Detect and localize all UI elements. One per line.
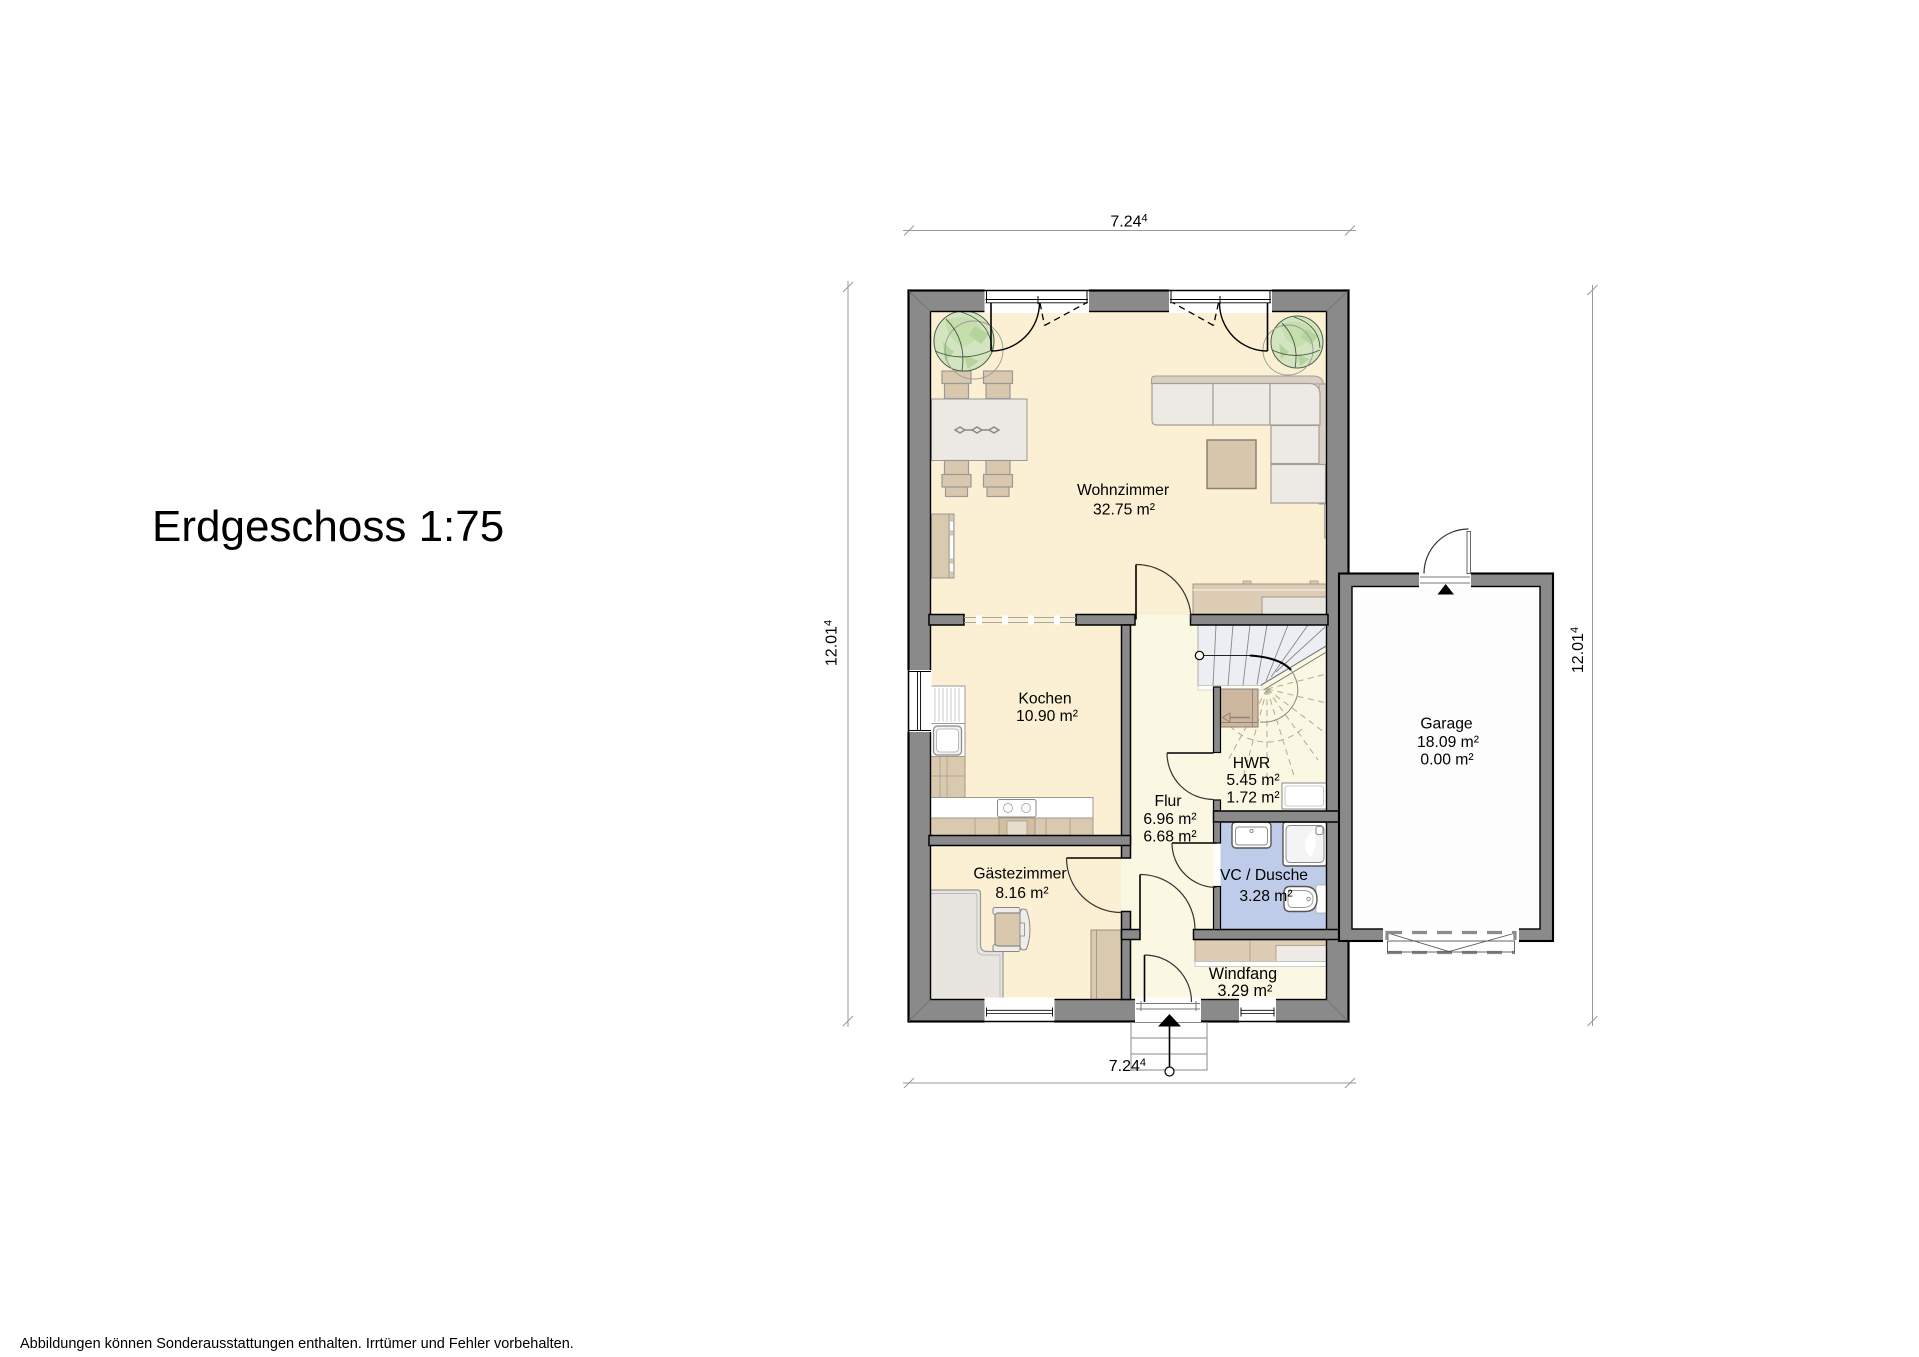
svg-text:3.28 m²: 3.28 m² [1239,888,1292,905]
svg-text:18.09 m²: 18.09 m² [1417,734,1479,751]
svg-text:5.45 m²: 5.45 m² [1226,772,1279,789]
svg-text:Kochen: Kochen [1018,691,1071,708]
svg-text:Erdgeschoss 1:75: Erdgeschoss 1:75 [152,502,504,551]
svg-text:Abbildungen können Sonderausst: Abbildungen können Sonderausstattungen e… [20,1336,574,1352]
svg-text:3.29 m²: 3.29 m² [1218,982,1273,1000]
svg-text:1.72 m²: 1.72 m² [1226,790,1279,807]
svg-text:12.014: 12.014 [1569,627,1587,673]
svg-text:Flur: Flur [1154,793,1181,810]
svg-text:VC / Dusche: VC / Dusche [1220,867,1308,884]
svg-text:12.014: 12.014 [823,620,841,666]
svg-text:Wohnzimmer: Wohnzimmer [1077,482,1169,499]
svg-text:10.90 m²: 10.90 m² [1016,708,1078,725]
svg-text:HWR: HWR [1233,755,1270,772]
svg-text:8.16 m²: 8.16 m² [995,885,1048,902]
svg-text:6.96 m²: 6.96 m² [1143,811,1196,828]
svg-text:Gästezimmer: Gästezimmer [973,866,1066,883]
svg-text:6.68 m²: 6.68 m² [1143,829,1196,846]
svg-text:32.75 m²: 32.75 m² [1093,502,1155,519]
svg-text:Garage: Garage [1420,716,1473,733]
svg-text:Windfang: Windfang [1209,965,1277,983]
svg-text:0.00 m²: 0.00 m² [1420,752,1473,769]
